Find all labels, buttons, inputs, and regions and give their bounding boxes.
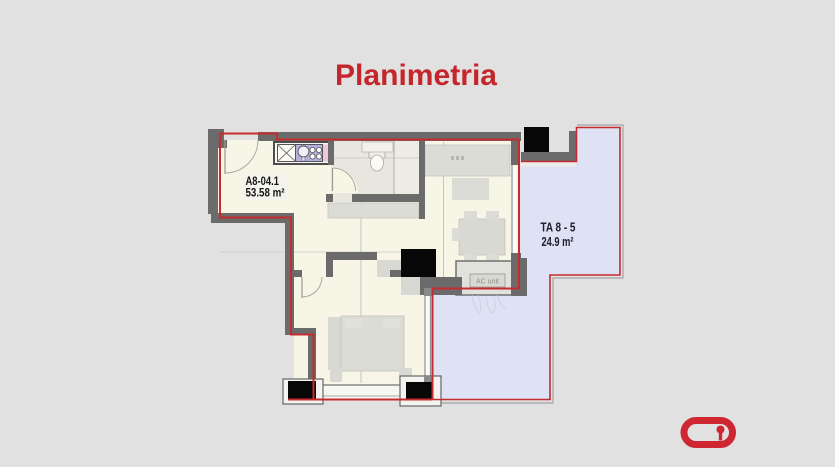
svg-text:TA 8 - 5: TA 8 - 5 bbox=[541, 220, 576, 235]
svg-text:AC unit: AC unit bbox=[476, 279, 499, 286]
svg-text:Planimetria: Planimetria bbox=[335, 59, 497, 92]
svg-text:53.58 m²: 53.58 m² bbox=[246, 186, 285, 200]
svg-text:24.9 m²: 24.9 m² bbox=[542, 234, 574, 249]
